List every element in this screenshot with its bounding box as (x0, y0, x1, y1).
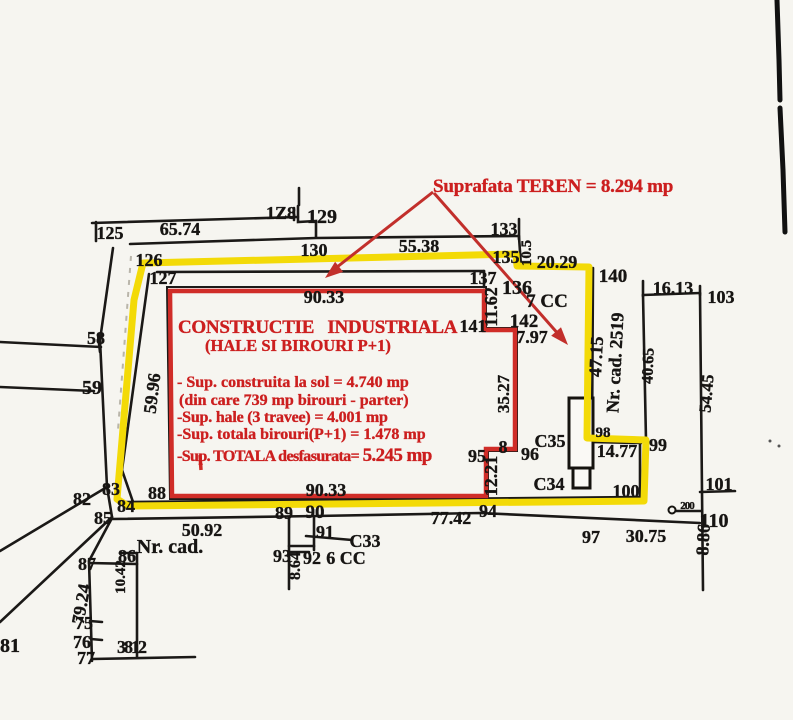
svg-text:90.33: 90.33 (304, 287, 345, 307)
svg-text:91: 91 (316, 522, 334, 542)
svg-text:137: 137 (470, 268, 497, 288)
svg-text:35.27: 35.27 (494, 374, 513, 413)
svg-text:87: 87 (78, 554, 96, 574)
svg-text:- Sup. construita la sol = 4.7: - Sup. construita la sol = 4.740 mp (177, 374, 409, 391)
svg-text:77.42: 77.42 (431, 508, 472, 528)
svg-text:(HALE SI BIROURI P+1): (HALE SI BIROURI P+1) (205, 336, 391, 355)
svg-text:100: 100 (613, 481, 640, 501)
svg-text:81: 81 (0, 635, 20, 657)
svg-text:130: 130 (301, 240, 328, 260)
svg-text:140: 140 (599, 266, 628, 287)
svg-text:98: 98 (596, 425, 611, 441)
svg-text:Suprafata TEREN = 8.294 mp: Suprafata TEREN = 8.294 mp (433, 176, 673, 197)
svg-text:82: 82 (73, 489, 91, 509)
svg-text:90.33: 90.33 (306, 480, 347, 500)
svg-text:89: 89 (275, 503, 293, 523)
svg-text:90: 90 (306, 502, 325, 523)
svg-text:94: 94 (479, 501, 497, 521)
svg-text:-Sup. hale (3 travee) = 4.001: -Sup. hale (3 travee) = 4.001 mp (177, 409, 388, 426)
svg-text:C35: C35 (535, 431, 566, 451)
svg-text:55.38: 55.38 (399, 236, 440, 256)
svg-text:10.42: 10.42 (113, 560, 129, 594)
svg-text:30.75: 30.75 (626, 526, 667, 546)
svg-text:Nr. cad.: Nr. cad. (137, 536, 203, 558)
svg-text:-Sup. TOTALA desfasurata= 5.24: -Sup. TOTALA desfasurata= 5.245 mp (177, 445, 432, 466)
svg-text:16.13: 16.13 (653, 278, 694, 298)
svg-text:10.5: 10.5 (519, 240, 535, 266)
svg-text:C34: C34 (534, 474, 565, 494)
svg-text:1Z8: 1Z8 (266, 203, 296, 223)
svg-text:101: 101 (706, 474, 733, 494)
svg-text:59: 59 (82, 377, 102, 399)
svg-text:125: 125 (97, 223, 124, 243)
svg-text:99: 99 (649, 435, 667, 455)
svg-text:11.62: 11.62 (481, 287, 501, 327)
svg-text:84: 84 (117, 496, 135, 516)
svg-text:(din care 739 mp birouri - par: (din care 739 mp birouri - parter) (179, 392, 409, 409)
svg-text:8: 8 (499, 437, 508, 457)
svg-text:200: 200 (680, 500, 695, 512)
svg-text:40.65: 40.65 (639, 348, 657, 385)
svg-text:129: 129 (307, 206, 337, 228)
svg-text:133: 133 (491, 219, 518, 239)
svg-text:88: 88 (148, 483, 166, 503)
svg-text:CONSTRUCTIE INDUSTRIALA: CONSTRUCTIE INDUSTRIALA (178, 317, 458, 338)
svg-text:65.74: 65.74 (160, 219, 201, 239)
svg-text:97: 97 (582, 527, 600, 547)
svg-text:126: 126 (136, 250, 163, 270)
svg-text:8.64: 8.64 (287, 552, 304, 580)
svg-text:3812: 3812 (117, 637, 147, 657)
svg-text:14.77: 14.77 (597, 441, 638, 461)
svg-text:-Sup. totala birouri(P+1) = 1.: -Sup. totala birouri(P+1) = 1.478 mp (177, 426, 426, 443)
svg-text:6 CC: 6 CC (326, 548, 366, 568)
svg-text:12.21: 12.21 (481, 456, 501, 497)
svg-text:7.97: 7.97 (516, 327, 548, 347)
svg-text:54.45: 54.45 (695, 374, 717, 414)
svg-text:77: 77 (77, 648, 95, 668)
svg-text:7 CC: 7 CC (526, 291, 568, 312)
svg-text:103: 103 (708, 287, 735, 307)
svg-text:8.86: 8.86 (692, 523, 714, 556)
svg-text:85: 85 (94, 508, 112, 528)
svg-text:58: 58 (87, 328, 105, 348)
svg-text:127: 127 (150, 268, 177, 288)
svg-text:135: 135 (493, 247, 520, 267)
svg-text:92: 92 (303, 548, 321, 568)
svg-text:20.29: 20.29 (537, 252, 578, 272)
